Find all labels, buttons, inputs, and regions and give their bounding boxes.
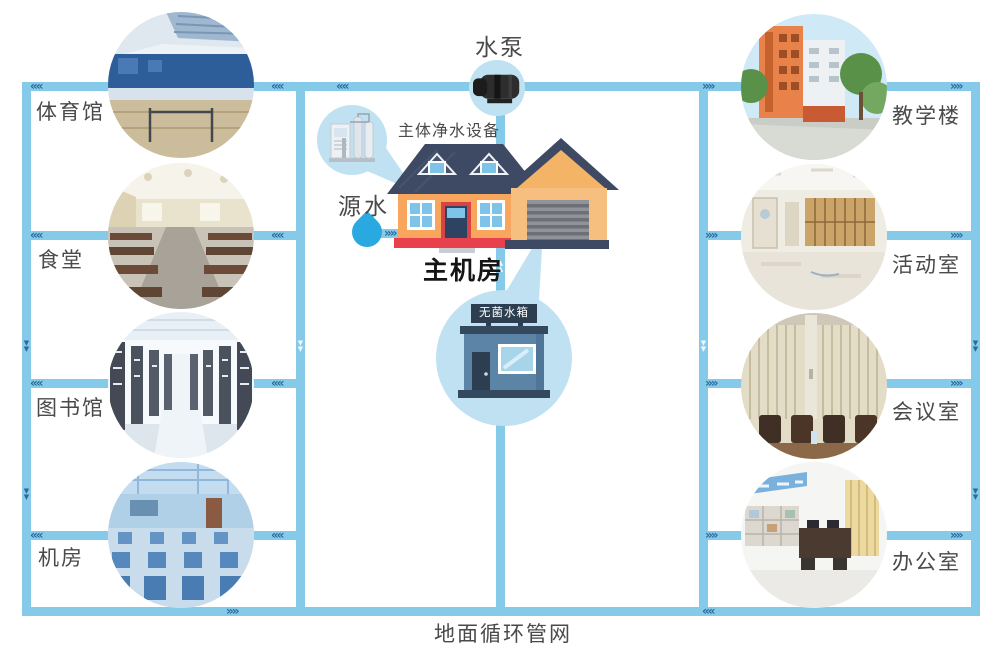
flow-arrow-left-icon: «« — [336, 80, 348, 92]
facility-photo-office — [741, 462, 887, 608]
flow-arrow-down-icon: ▼ ▼ — [296, 340, 305, 353]
bottom-caption: 地面循环管网 — [353, 618, 653, 648]
facility-photo-gymnasium — [108, 12, 254, 158]
flow-arrow-right-icon: »» — [950, 529, 962, 541]
pump-label: 水泵 — [430, 28, 570, 62]
facility-label-computer-lab: 机房 — [38, 542, 84, 572]
flow-arrow-left-icon: «« — [271, 80, 283, 92]
purifier-label: 主体净水设备 — [398, 117, 500, 141]
flow-arrow-down-icon: ▼ ▼ — [971, 340, 980, 353]
facility-photo-library — [108, 312, 254, 458]
flow-arrow-down-icon: ▼ ▼ — [971, 488, 980, 501]
flow-arrow-left-icon: «« — [702, 605, 714, 617]
flow-arrow-left-icon: «« — [271, 229, 283, 241]
source-water-label: 源水 — [338, 187, 390, 221]
flow-arrow-right-icon: »» — [705, 229, 717, 241]
flow-arrow-left-icon: «« — [30, 229, 42, 241]
flow-arrow-down-icon: ▼ ▼ — [22, 340, 31, 353]
flow-arrow-down-icon: ▼ ▼ — [699, 340, 708, 353]
facility-label-meeting-room: 会议室 — [892, 396, 961, 426]
water-purifier-icon — [322, 110, 382, 170]
facility-label-dining-hall: 食堂 — [38, 244, 84, 274]
flow-arrow-right-icon: »» — [950, 80, 962, 92]
flow-arrow-right-icon: »» — [705, 377, 717, 389]
flow-arrow-left-icon: «« — [30, 80, 42, 92]
facility-label-library: 图书馆 — [36, 392, 105, 422]
tank-sign: 无菌水箱 — [471, 304, 537, 323]
main-room-label: 主机房 — [386, 251, 541, 287]
facility-label-gymnasium: 体育馆 — [36, 96, 105, 126]
purifier-bubble — [317, 105, 387, 175]
flow-arrow-left-icon: «« — [271, 529, 283, 541]
flow-arrow-left-icon: «« — [30, 529, 42, 541]
facility-photo-computer-lab — [108, 462, 254, 608]
water-pump-icon — [473, 73, 521, 105]
flow-arrow-right-icon: »» — [702, 80, 714, 92]
flow-arrow-down-icon: ▼ ▼ — [22, 488, 31, 501]
flow-arrow-left-icon: «« — [271, 377, 283, 389]
facility-label-office: 办公室 — [892, 546, 961, 576]
facility-label-teaching-building: 教学楼 — [892, 100, 961, 130]
facility-photo-teaching-building — [741, 14, 887, 160]
pump-circle — [469, 60, 525, 116]
flow-arrow-right-icon: »» — [950, 229, 962, 241]
flow-arrow-left-icon: «« — [30, 377, 42, 389]
main-room-house-icon — [385, 130, 620, 256]
facility-label-activity-room: 活动室 — [892, 249, 961, 279]
flow-arrow-right-icon: »» — [705, 529, 717, 541]
flow-arrow-right-icon: »» — [226, 605, 238, 617]
facility-photo-dining-hall — [108, 163, 254, 309]
flow-arrow-right-icon: »» — [950, 377, 962, 389]
facility-photo-meeting-room — [741, 313, 887, 459]
facility-photo-activity-room — [741, 164, 887, 310]
water-circulation-diagram: «« «« «« »» »» «« «« »» »» «« «« »» »» «… — [0, 0, 1000, 656]
